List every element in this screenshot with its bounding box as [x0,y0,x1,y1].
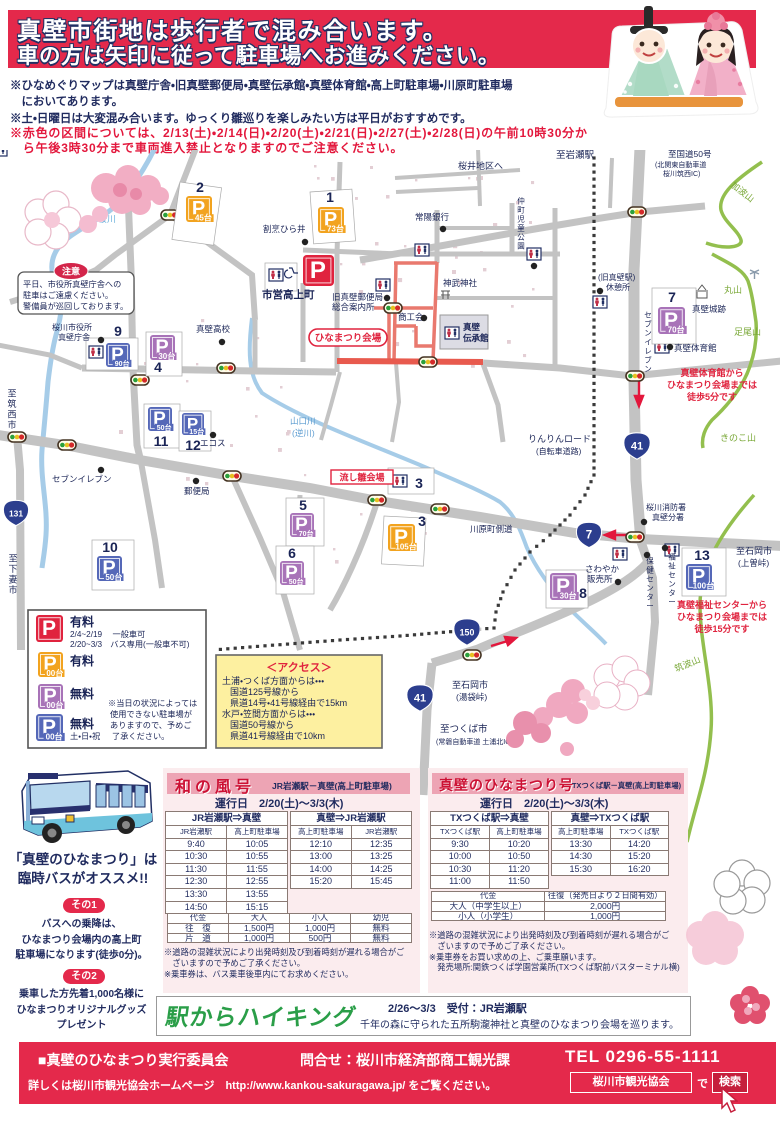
svg-text:セブンイレブン: セブンイレブン [52,474,112,484]
svg-text:注意: 注意 [62,266,80,277]
svg-text:真壁体育館: 真壁体育館 [674,343,717,353]
svg-text:真壁城跡: 真壁城跡 [692,304,727,314]
svg-text:りんりんロード: りんりんロード [528,434,591,444]
svg-text:(逆川): (逆川) [292,428,315,438]
svg-text:エコス: エコス [200,438,226,448]
svg-text:無料: 無料 [70,716,94,731]
svg-text:90台: 90台 [115,359,130,368]
svg-text:真壁高校: 真壁高校 [196,324,231,334]
svg-text:(自転車道路): (自転車道路) [536,446,582,456]
svg-text:00台: 00台 [46,700,63,710]
svg-text:13: 13 [694,547,710,563]
svg-text:国道125号線から: 国道125号線から [230,686,299,697]
svg-text:ひなまつり会場までは: ひなまつり会場までは [667,379,757,390]
svg-text:41: 41 [631,441,643,453]
svg-text:70台: 70台 [668,325,685,335]
svg-text:10: 10 [102,539,118,555]
svg-text:丸山: 丸山 [724,284,742,295]
svg-text:12: 12 [185,437,201,453]
svg-text:県道14号・41号線経由で15km: 県道14号・41号線経由で15km [230,697,347,708]
svg-text:7: 7 [668,289,676,305]
svg-text:＜アクセス＞: ＜アクセス＞ [266,661,331,674]
svg-text:国道50号線から: 国道50号線から [230,719,294,730]
svg-text:50台: 50台 [105,572,122,582]
svg-text:(北関東自動車道: (北関東自動車道 [655,160,706,169]
svg-text:至岩瀬駅: 至岩瀬駅 [556,150,595,161]
svg-text:至国道50号: 至国道50号 [668,150,712,159]
svg-text:休憩所: 休憩所 [606,282,630,292]
svg-text:3: 3 [415,475,423,491]
svg-text:150: 150 [460,628,475,638]
svg-text:50台: 50台 [289,577,304,586]
svg-text:使用できない駐車場が: 使用できない駐車場が [110,709,192,719]
svg-text:ありますので、予めご: ありますので、予めご [110,720,192,730]
svg-text:さわやか: さわやか [585,564,620,574]
svg-text:了承ください。: 了承ください。 [112,732,169,741]
svg-text:真壁福祉センターから: 真壁福祉センターから [677,599,767,610]
svg-text:桜川筑西IC): 桜川筑西IC) [663,169,700,178]
svg-text:旧真壁郵便局: 旧真壁郵便局 [332,292,383,302]
svg-text:川原町側道: 川原町側道 [470,524,513,534]
svg-text:至石岡市: 至石岡市 [736,545,772,556]
svg-text:至石岡市: 至石岡市 [452,679,488,690]
svg-text:2/20~3/3 バス専用(一般車不可): 2/20~3/3 バス専用(一般車不可) [70,639,190,649]
svg-text:筑波山: 筑波山 [673,654,702,674]
svg-text:徒歩15分です: 徒歩15分です [693,623,749,634]
svg-text:15台: 15台 [189,427,204,436]
svg-text:至つくば市: 至つくば市 [440,723,488,735]
svg-text:加波山: 加波山 [729,179,757,204]
svg-text:真壁庁舎: 真壁庁舎 [58,332,90,342]
svg-text:00台: 00台 [46,732,63,742]
svg-text:セブンイレブン: セブンイレブン [644,311,652,374]
svg-text:4: 4 [154,359,162,375]
svg-text:30台: 30台 [560,591,577,601]
svg-text:9: 9 [114,323,122,339]
svg-text:105台: 105台 [395,542,416,552]
svg-text:1: 1 [326,189,334,205]
svg-text:ひなまつり会場: ひなまつり会場 [315,332,382,344]
svg-text:真壁: 真壁 [463,322,481,332]
svg-text:徒歩5分です: 徒歩5分です [686,391,737,402]
svg-text:P: P [42,617,56,640]
svg-text:50台: 50台 [157,423,172,432]
svg-text:土浦・つくば方面からは・・・: 土浦・つくば方面からは・・・ [222,675,324,686]
svg-text:桜川消防署: 桜川消防署 [646,502,686,512]
svg-text:有料: 有料 [70,614,94,629]
svg-text:11: 11 [154,433,169,449]
svg-text:(旧真壁駅): (旧真壁駅) [598,272,636,282]
svg-text:販売所: 販売所 [587,574,613,584]
svg-text:7: 7 [586,529,592,541]
svg-text:桜川市役所: 桜川市役所 [52,322,92,332]
svg-text:P: P [310,257,326,284]
svg-text:保健センター: 保健センター [646,557,654,611]
svg-text:8: 8 [579,585,587,601]
svg-text:5: 5 [299,497,307,513]
svg-text:真壁体育館から: 真壁体育館から [680,367,743,378]
svg-text:2/4~2/19 一般車可: 2/4~2/19 一般車可 [70,629,145,639]
svg-text:真壁分署: 真壁分署 [652,512,684,522]
svg-text:神武神社: 神武神社 [443,278,478,288]
svg-text:山口川: 山口川 [290,416,316,426]
svg-text:仲町児童公園: 仲町児童公園 [517,196,525,251]
svg-text:土・日・祝: 土・日・祝 [70,731,101,741]
svg-text:総合案内所: 総合案内所 [332,302,375,312]
svg-text:3: 3 [418,513,426,529]
svg-text:(常磐自動車道 土浦北IC): (常磐自動車道 土浦北IC) [436,737,513,746]
svg-text:桜井地区へ: 桜井地区へ [458,160,503,171]
svg-text:131: 131 [9,508,23,518]
svg-text:73台: 73台 [327,224,344,234]
svg-text:2: 2 [196,179,204,195]
svg-text:きのこ山: きのこ山 [720,433,756,443]
svg-text:伝承館: 伝承館 [462,333,489,343]
svg-text:商工会: 商工会 [398,312,424,322]
svg-text:県道41号線経由で10km: 県道41号線経由で10km [230,730,325,741]
svg-text:足尾山: 足尾山 [734,327,761,337]
svg-text:至筑西市: 至筑西市 [7,389,16,431]
svg-text:駐車はご遠慮ください。: 駐車はご遠慮ください。 [23,290,113,300]
svg-text:70台: 70台 [299,529,314,538]
svg-text:41: 41 [414,693,426,705]
svg-text:至下妻市: 至下妻市 [8,554,17,596]
svg-text:割烹ひら井: 割烹ひら井 [263,224,306,234]
svg-text:ひなまつり会場までは: ひなまつり会場までは [677,611,767,622]
svg-text:流し雛会場: 流し雛会場 [339,472,384,483]
svg-text:100台: 100台 [693,581,714,591]
svg-text:00台: 00台 [46,668,63,678]
svg-text:無料: 無料 [70,686,94,701]
svg-text:水戸・笠間方面からは・・・: 水戸・笠間方面からは・・・ [222,708,315,719]
svg-text:※当日の状況によっては: ※当日の状況によっては [108,698,197,708]
svg-text:(湯袋峠): (湯袋峠) [456,692,487,702]
svg-text:常陽銀行: 常陽銀行 [415,212,450,222]
svg-text:6: 6 [288,545,296,561]
svg-text:平日、市役所真壁庁舎への: 平日、市役所真壁庁舎への [23,279,121,289]
svg-text:市営高上町: 市営高上町 [262,288,315,301]
svg-text:45台: 45台 [195,213,212,223]
svg-text:有料: 有料 [70,653,94,668]
svg-text:福祉センター: 福祉センター [668,552,676,607]
svg-text:警備員が巡回しております。: 警備員が巡回しております。 [23,301,128,311]
svg-text:郵便局: 郵便局 [184,486,210,496]
svg-text:(上曽峠): (上曽峠) [738,558,769,568]
